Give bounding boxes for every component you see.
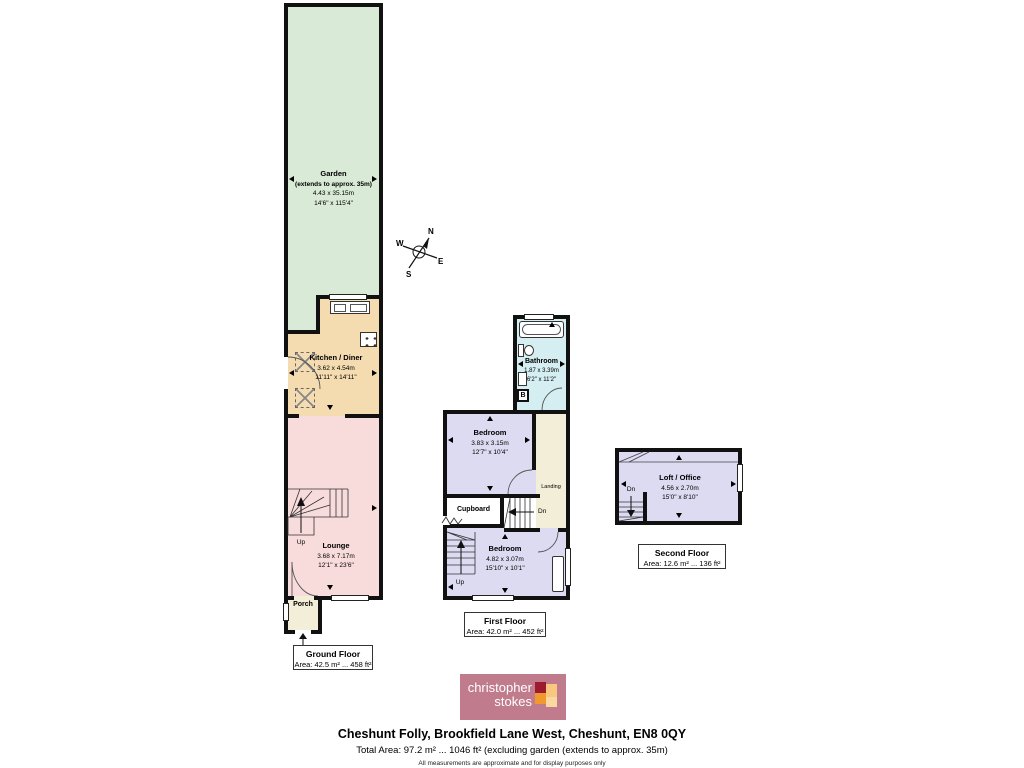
kitchen-label: Kitchen / Diner 3.62 x 4.54m 11'11" x 14…	[296, 352, 376, 383]
bedroom-back-imperial: 15'10" x 10'1"	[455, 564, 555, 573]
garden-label: Garden (extends to approx. 35m) 4.43 x 3…	[286, 168, 381, 208]
bedroom-back-measure-up-icon	[502, 534, 508, 539]
garden-metric: 4.43 x 35.15m	[286, 189, 381, 198]
garden-note: (extends to approx. 35m)	[286, 180, 381, 189]
bedroom-front-name: Bedroom	[447, 427, 533, 439]
ground-floor-area: Area: 42.5 m² ... 458 ft²	[294, 660, 372, 669]
landing-name: Landing	[536, 484, 566, 490]
floorplan-page: Garden (extends to approx. 35m) 4.43 x 3…	[0, 0, 1024, 768]
disclaimer-text: All measurements are approximate and for…	[0, 760, 1024, 767]
bathroom-measure-up-icon	[549, 322, 555, 327]
boiler-box: B	[517, 389, 529, 402]
toilet-bowl	[524, 345, 534, 356]
total-area-text: Total Area: 97.2 m² ... 1046 ft² (exclud…	[0, 745, 1024, 756]
bathroom-imperial: 6'2" x 11'2"	[515, 376, 568, 385]
bedroom-back-metric: 4.82 x 3.07m	[455, 555, 555, 564]
loft-metric: 4.56 x 2.70m	[630, 484, 730, 493]
logo-square-darkred-icon	[535, 682, 546, 693]
wall-break-icon	[442, 514, 462, 526]
second-floor-area: Area: 12.6 m² ... 136 ft²	[639, 559, 725, 568]
compass-w: W	[396, 239, 404, 248]
lounge-stairs-icon	[288, 489, 348, 537]
bathtub	[519, 321, 564, 338]
bedroom-front-measure-left-icon	[448, 437, 453, 443]
logo-square-lightpeach-icon	[546, 697, 557, 707]
bedroom-back-measure-left-icon	[448, 584, 453, 590]
bathroom-window	[524, 314, 554, 320]
bedroom-back-measure-down-icon	[502, 588, 508, 593]
bedroom-back-top-wall	[504, 528, 570, 532]
logo-line1: christopher	[466, 681, 532, 695]
logo-square-peach-icon	[546, 684, 557, 697]
second-floor-labelbox: Second Floor Area: 12.6 m² ... 136 ft²	[638, 544, 726, 569]
bedroom-back-bay	[552, 556, 564, 592]
kitchen-imperial: 11'11" x 14'11"	[296, 373, 376, 382]
stairs-dn-label: Dn	[538, 508, 558, 515]
compass-s: S	[406, 270, 412, 279]
first-floor-labelbox: First Floor Area: 42.0 m² ... 452 ft²	[464, 612, 546, 637]
cupboard-name: Cupboard	[447, 506, 500, 513]
kitchen-measure-right-icon	[372, 370, 377, 376]
logo-line2: stokes	[466, 695, 532, 709]
kitchen-sink	[330, 301, 370, 314]
compass-n: N	[428, 227, 434, 236]
lounge-metric: 3.68 x 7.17m	[296, 552, 376, 561]
garden-measure-left-icon	[289, 176, 294, 182]
first-floor-area: Area: 42.0 m² ... 452 ft²	[465, 627, 545, 636]
lounge-measure-right-icon	[372, 505, 377, 511]
kitchen-name: Kitchen / Diner	[296, 352, 376, 364]
porch-door-arc-icon	[292, 562, 318, 596]
kitchen-hob	[360, 332, 377, 347]
porch-lounge-gap	[294, 596, 314, 600]
loft-window	[737, 464, 743, 492]
loft-measure-up-icon	[676, 455, 682, 460]
bedroom-front-imperial: 12'7" x 10'4"	[447, 448, 533, 457]
logo-square-orange-icon	[535, 693, 546, 704]
bedroom-front-measure-right-icon	[525, 437, 530, 443]
kitchen-measure-down-icon	[327, 405, 333, 410]
bathroom-measure-right-icon	[560, 361, 565, 367]
bathroom-door-arc-icon	[542, 388, 562, 410]
bedroom-front-measure-up-icon	[487, 416, 493, 421]
bedroom-front-door-arc-icon	[508, 470, 532, 494]
loft-measure-down-icon	[676, 513, 682, 518]
porch-window	[283, 603, 289, 621]
compass-e: E	[438, 257, 444, 266]
loft-name: Loft / Office	[630, 472, 730, 484]
loft-measure-right-icon	[731, 481, 736, 487]
bedroom-back-name: Bedroom	[455, 543, 555, 555]
second-floor-title: Second Floor	[639, 548, 725, 559]
lounge-measure-down-icon	[327, 585, 333, 590]
lounge-name: Lounge	[296, 540, 376, 552]
bathroom-measure-left-icon	[518, 361, 523, 367]
loft-label: Loft / Office 4.56 x 2.70m 15'0" x 8'10"	[630, 472, 730, 503]
compass-rose-icon: N W E S	[396, 224, 444, 280]
bedroom-back-label: Bedroom 4.82 x 3.07m 15'10" x 10'1"	[455, 543, 555, 574]
christopher-stokes-logo: christopher stokes	[460, 674, 566, 720]
lounge-window	[331, 595, 369, 601]
property-address: Cheshunt Folly, Brookfield Lane West, Ch…	[0, 727, 1024, 741]
bathroom-metric: 1.87 x 3.39m	[515, 367, 568, 376]
kitchen-skylight-icon	[295, 388, 315, 408]
bedroom-back-side-window	[565, 548, 571, 586]
loft-imperial: 15'0" x 8'10"	[630, 493, 730, 502]
bedroom-front-measure-down-icon	[487, 486, 493, 491]
kitchen-window	[329, 294, 367, 300]
kitchen-metric: 3.62 x 4.54m	[296, 364, 376, 373]
first-floor-title: First Floor	[465, 616, 545, 627]
garden-imperial: 14'6" x 115'4"	[286, 199, 381, 208]
garden-name: Garden	[286, 168, 381, 180]
bedroom-front-metric: 3.83 x 3.15m	[447, 439, 533, 448]
kitchen-measure-left-icon	[289, 370, 294, 376]
loft-measure-left-icon	[621, 481, 626, 487]
porch-name: Porch	[286, 601, 320, 608]
bedroom-front-label: Bedroom 3.83 x 3.15m 12'7" x 10'4"	[447, 427, 533, 458]
stairs-down-icon	[504, 498, 536, 528]
ground-floor-labelbox: Ground Floor Area: 42.5 m² ... 458 ft²	[293, 645, 373, 670]
ground-floor-title: Ground Floor	[294, 649, 372, 660]
bedroom-back-window	[472, 595, 514, 601]
garden-measure-right-icon	[372, 176, 377, 182]
